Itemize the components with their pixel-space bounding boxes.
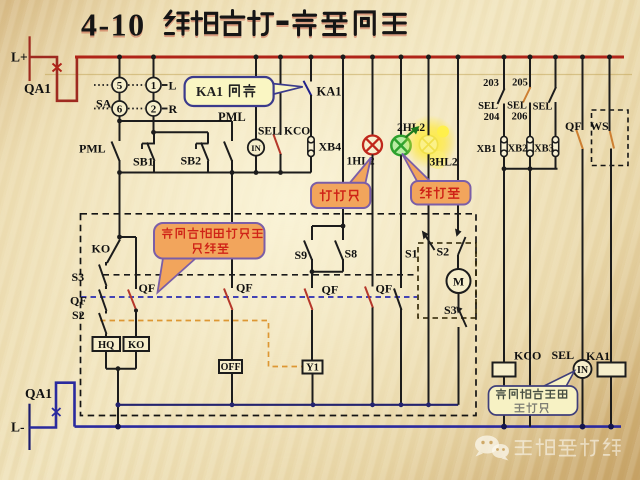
svg-text:SB2: SB2 <box>181 154 202 168</box>
svg-text:SEL: SEL <box>533 102 553 113</box>
svg-text:SEL: SEL <box>258 126 280 138</box>
svg-text:204: 204 <box>484 112 501 123</box>
svg-text:QF: QF <box>376 282 393 296</box>
svg-text:6: 6 <box>117 103 123 115</box>
svg-text:QA1: QA1 <box>25 386 52 401</box>
svg-text:IN: IN <box>251 143 261 153</box>
svg-text:2: 2 <box>151 103 157 115</box>
svg-text:IN: IN <box>577 365 589 376</box>
svg-text:206: 206 <box>512 112 528 123</box>
svg-text:L: L <box>169 78 177 92</box>
svg-text:KA1: KA1 <box>586 349 610 363</box>
svg-text:3HL2: 3HL2 <box>430 156 458 168</box>
svg-text:SEL: SEL <box>552 348 575 362</box>
svg-text:KCO: KCO <box>284 126 310 138</box>
svg-text:S3: S3 <box>72 270 85 284</box>
svg-text:KA1: KA1 <box>317 85 342 99</box>
svg-text:R: R <box>169 102 178 116</box>
svg-text:XB2: XB2 <box>508 144 528 155</box>
svg-text:PML: PML <box>79 142 106 156</box>
svg-text:XB3: XB3 <box>534 144 554 155</box>
svg-text:SB1: SB1 <box>133 155 154 169</box>
svg-text:1: 1 <box>151 80 157 92</box>
svg-text:PML: PML <box>218 110 246 124</box>
svg-text:4-10: 4-10 <box>81 7 146 43</box>
svg-text:SEL: SEL <box>507 101 527 112</box>
svg-text:SA: SA <box>96 97 112 111</box>
svg-text:203: 203 <box>483 78 499 89</box>
svg-text:205: 205 <box>512 78 528 89</box>
svg-text:KA1: KA1 <box>196 84 223 99</box>
svg-text:M: M <box>453 275 464 289</box>
svg-text:S1: S1 <box>405 247 418 261</box>
svg-text:HQ: HQ <box>98 340 114 351</box>
svg-text:QA1: QA1 <box>24 81 51 96</box>
svg-text:S3: S3 <box>444 303 457 317</box>
svg-text:SEL: SEL <box>478 101 498 112</box>
svg-text:L+: L+ <box>11 50 28 65</box>
svg-text:OFF: OFF <box>221 362 241 373</box>
svg-text:XB4: XB4 <box>319 140 342 154</box>
svg-text:S2: S2 <box>72 308 85 322</box>
svg-text:QF: QF <box>322 283 339 297</box>
svg-text:XB1: XB1 <box>477 144 497 155</box>
svg-text:KCO: KCO <box>514 349 541 363</box>
svg-text:WS: WS <box>590 119 609 133</box>
svg-text:Y1: Y1 <box>306 363 319 374</box>
svg-text:QF: QF <box>139 281 156 295</box>
svg-text:S9: S9 <box>295 248 308 262</box>
svg-text:L-: L- <box>11 420 25 435</box>
svg-text:QF: QF <box>236 281 253 295</box>
svg-text:KO: KO <box>92 242 111 256</box>
svg-text:S8: S8 <box>345 247 358 261</box>
svg-text:KO: KO <box>128 340 144 351</box>
svg-text:QF: QF <box>565 119 582 133</box>
svg-text:QF: QF <box>70 294 87 308</box>
svg-text:5: 5 <box>117 80 123 92</box>
svg-text:S2: S2 <box>437 245 450 259</box>
